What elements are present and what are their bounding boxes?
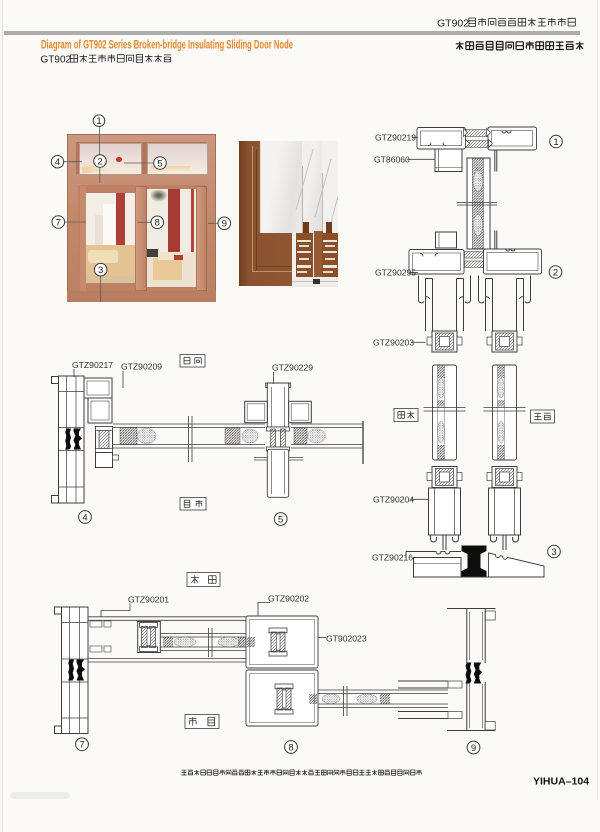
svg-text:2: 2 [553,267,558,278]
svg-text:9: 9 [471,743,476,754]
svg-text:GTZ90209: GTZ90209 [121,362,162,372]
svg-text:GTZ90204: GTZ90204 [373,495,414,505]
svg-text:GT902023: GT902023 [326,634,367,644]
svg-text:5: 5 [157,158,162,169]
svg-text:7: 7 [79,740,84,751]
svg-text:8: 8 [288,742,293,753]
svg-text:GTZ90201: GTZ90201 [128,595,169,605]
svg-text:GTZ90217: GTZ90217 [72,360,113,370]
svg-text:4: 4 [55,157,60,168]
svg-text:2: 2 [97,156,102,167]
svg-text:GTZ90229: GTZ90229 [272,363,313,373]
svg-text:GTZ90216: GTZ90216 [372,553,413,563]
svg-text:GT902: GT902 [437,18,469,30]
svg-text:5: 5 [278,514,283,525]
svg-text:3: 3 [98,265,103,276]
svg-text:GTZ90219: GTZ90219 [375,133,416,143]
svg-text:GT902: GT902 [41,55,72,66]
svg-text:3: 3 [551,547,556,558]
svg-text:Diagram of GT902 Series Broken: Diagram of GT902 Series Broken-bridge In… [41,38,293,52]
svg-text:7: 7 [56,217,61,228]
svg-text:8: 8 [155,218,160,229]
svg-text:9: 9 [222,219,227,230]
svg-text:4: 4 [82,512,87,523]
svg-text:1: 1 [96,116,101,127]
svg-text:1: 1 [553,137,558,148]
svg-text:GT86060: GT86060 [374,155,410,165]
svg-text:GTZ90295: GTZ90295 [375,268,416,278]
svg-text:GTZ90202: GTZ90202 [268,594,309,604]
svg-text:YIHUA–104: YIHUA–104 [533,776,589,788]
svg-text:GTZ90203: GTZ90203 [373,338,414,348]
